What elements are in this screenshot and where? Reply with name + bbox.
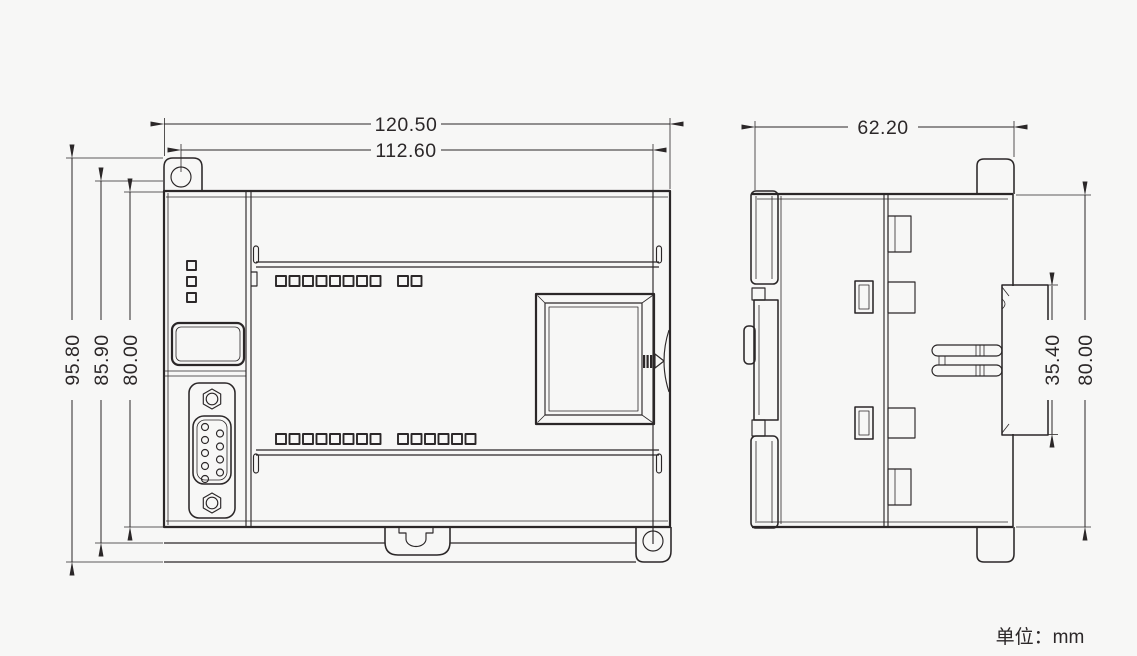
finger-groove-arc [664, 330, 669, 392]
dim-label-overall-width: 120.50 [375, 114, 438, 136]
divider-notch [251, 272, 257, 286]
led [187, 261, 196, 270]
db9-connector [189, 383, 235, 518]
terminal-strip-top [254, 246, 662, 267]
block [888, 469, 911, 505]
strip-hook [657, 246, 662, 263]
front-body-outline [164, 191, 670, 527]
io-led [344, 434, 354, 444]
block [888, 216, 911, 252]
bottom-base [164, 543, 636, 562]
dim-label-din-section: 35.40 [1042, 334, 1064, 385]
dim-body-height: 80.00 [119, 192, 142, 527]
dim-overall-height: 95.80 [61, 158, 84, 562]
db9-screw-hole-top [206, 393, 218, 405]
io-led [303, 276, 313, 286]
mounting-ear-top-left [164, 158, 202, 191]
mode-switch-slot [172, 323, 244, 365]
din-clip-notch [399, 527, 433, 547]
door-latch-marking [643, 330, 669, 392]
io-led [398, 276, 408, 286]
unit-note: 单位：mm [996, 626, 1085, 648]
led [187, 293, 196, 302]
dim-label-side-body-height: 80.00 [1075, 334, 1097, 385]
io-led [290, 276, 300, 286]
db9-pins [202, 424, 224, 483]
led [187, 277, 196, 286]
access-door [536, 294, 669, 424]
io-led [425, 434, 435, 444]
cover-notch-bottom [752, 420, 765, 436]
io-led [439, 434, 449, 444]
door-frame-inner [545, 303, 642, 415]
io-led [276, 276, 286, 286]
side-mid-face [744, 300, 778, 420]
strip-hook [254, 246, 259, 263]
ear-tab-top [977, 159, 1014, 194]
status-led-column [187, 261, 196, 302]
io-led [357, 434, 367, 444]
front-view [164, 158, 671, 562]
screw-slot-lower [855, 407, 873, 439]
dim-overall-width: 120.50 [164, 114, 670, 136]
door-frame-innermost [549, 307, 638, 411]
io-led [330, 434, 340, 444]
io-led [317, 434, 327, 444]
io-led [344, 276, 354, 286]
strip-hook [657, 454, 662, 473]
io-led [398, 434, 408, 444]
io-led [330, 276, 340, 286]
block [888, 408, 915, 438]
front-view-dimensions: 120.50 112.60 95.80 85.90 80.00 [61, 114, 670, 562]
dimension-drawing: 120.50 112.60 95.80 85.90 80.00 [0, 0, 1137, 656]
terminal-cover-top [751, 191, 778, 284]
left-column-divider [246, 191, 257, 527]
db9-screw-hole-bottom [206, 497, 218, 509]
io-led [452, 434, 462, 444]
terminal-strip-bottom [254, 450, 662, 473]
latch-arrow [655, 354, 664, 368]
dim-label-mid-height: 85.90 [91, 334, 113, 385]
ear-tab-bottom [977, 527, 1014, 562]
io-led [466, 434, 476, 444]
io-led [412, 434, 422, 444]
io-led [412, 276, 422, 286]
dim-label-overall-height: 95.80 [62, 334, 84, 385]
io-led [317, 276, 327, 286]
strip-hook [254, 454, 259, 473]
terminal-cover-bottom [751, 436, 778, 528]
dim-mounting-span: 112.60 [181, 140, 653, 162]
db9-shell [193, 416, 231, 484]
io-led-row-bottom [276, 434, 476, 444]
io-led [371, 434, 381, 444]
dim-label-mounting-span: 112.60 [375, 140, 436, 162]
door-frame-outer [536, 294, 654, 424]
side-view [744, 159, 1048, 562]
dim-mid-height: 85.90 [90, 181, 113, 543]
din-clip-fork [932, 345, 1002, 376]
terminal-block-profiles [888, 216, 915, 505]
din-clip-tab [385, 527, 450, 555]
screw-slot-upper [855, 281, 873, 313]
block [888, 282, 915, 313]
side-view-dimensions: 62.20 35.40 80.00 [755, 117, 1097, 527]
io-led-row-top [276, 276, 422, 286]
dim-depth: 62.20 [755, 117, 1014, 139]
dim-side-body-height: 80.00 [1074, 195, 1097, 527]
io-led [357, 276, 367, 286]
cover-notch-top [752, 288, 765, 300]
dim-din-section: 35.40 [1041, 286, 1064, 434]
io-led [276, 434, 286, 444]
dim-label-depth: 62.20 [857, 117, 908, 139]
io-led [290, 434, 300, 444]
io-led [303, 434, 313, 444]
dim-label-body-height: 80.00 [120, 334, 142, 385]
io-led [371, 276, 381, 286]
